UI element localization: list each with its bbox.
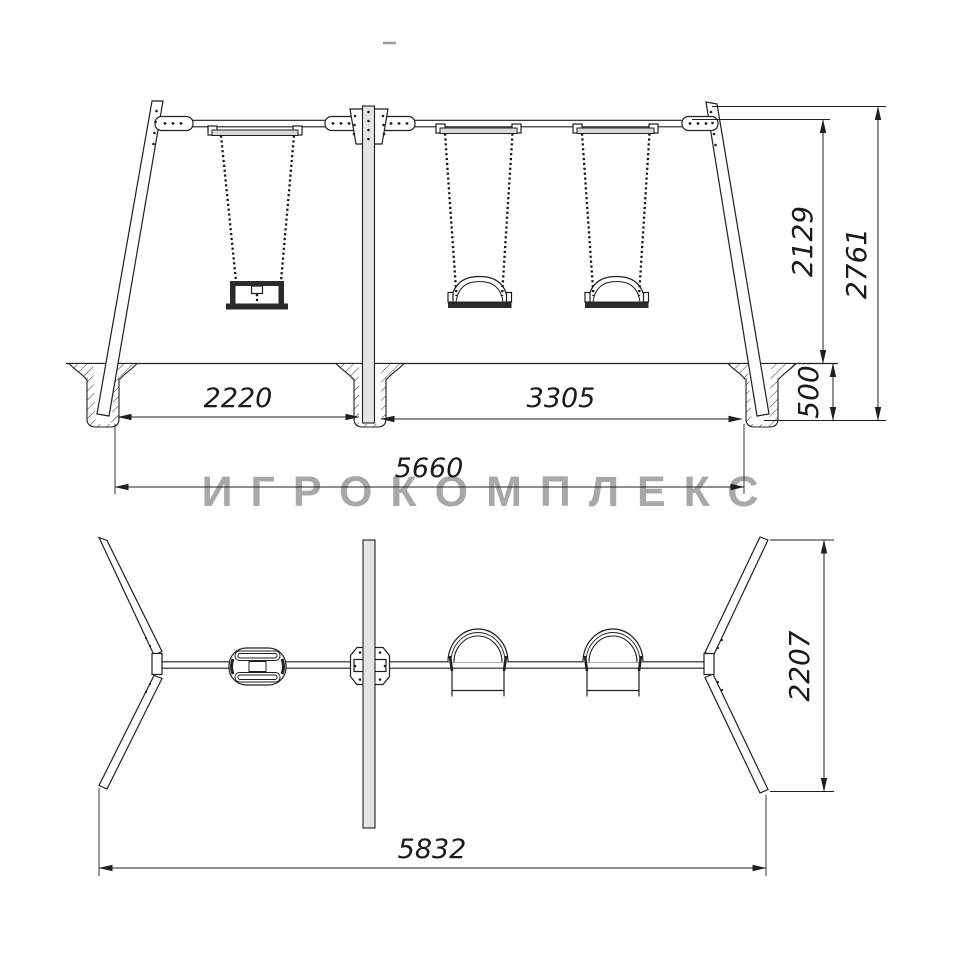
swing-hanger-bar: [212, 130, 298, 136]
dimension-total-height: 2761: [840, 107, 878, 421]
plan-right-junction: [704, 654, 714, 675]
swing-chain: [639, 134, 650, 297]
plan-left-leg-lower: [99, 676, 162, 790]
watermark-text: ИГРОКОМПЛЕКС: [202, 468, 777, 516]
swing-chain: [221, 136, 236, 282]
swing-hanger-bar: [440, 128, 517, 134]
dimension-beam-height: 2129: [786, 120, 823, 364]
swing-chain: [281, 136, 294, 282]
plan-center-bar: [363, 540, 375, 828]
front-elevation-view: [66, 101, 838, 427]
dimension-span-right: 3305: [381, 383, 742, 419]
dimension-plan-total-width: 5832: [99, 834, 766, 868]
plan-right-leg-lower: [705, 674, 768, 793]
drawing-sheet: ИГРОКОМПЛЕКС 2220 3305 5660 2129 2761: [0, 0, 980, 980]
plan-left-junction: [152, 654, 162, 675]
plan-toddler-seat: [229, 648, 286, 685]
plan-left-leg-upper: [99, 538, 162, 656]
dimension-value: 2207: [783, 630, 816, 701]
plan-flat-seat-left: [448, 629, 508, 697]
front-center-post: [363, 106, 375, 423]
dimension-value: 5660: [395, 453, 464, 484]
dimension-value: 500: [792, 365, 825, 418]
plan-right-leg-upper: [705, 537, 768, 657]
swing-chain: [502, 134, 513, 297]
bucket-seat: [226, 281, 288, 310]
dimension-value: 2129: [786, 206, 819, 277]
toddler-swing: [208, 126, 302, 310]
dimension-value: 3305: [527, 383, 596, 414]
dimension-value: 2220: [204, 383, 273, 414]
flat-swing-right: [573, 124, 658, 308]
dimension-foundation-depth: 500: [792, 364, 833, 421]
dimension-value: 2761: [840, 228, 873, 299]
swing-chain: [445, 134, 457, 297]
flat-swing-left: [436, 124, 521, 308]
dimension-value: 5832: [398, 834, 467, 865]
swing-hanger-bar: [577, 128, 654, 134]
dimension-span-left: 2220: [118, 383, 359, 417]
dimension-plan-leg-spread: 2207: [783, 540, 824, 792]
swing-chain: [582, 134, 594, 297]
plan-view: [99, 537, 768, 828]
plan-flat-seat-right: [583, 629, 643, 697]
technical-drawing-canvas: ИГРОКОМПЛЕКС 2220 3305 5660 2129 2761: [0, 0, 980, 980]
